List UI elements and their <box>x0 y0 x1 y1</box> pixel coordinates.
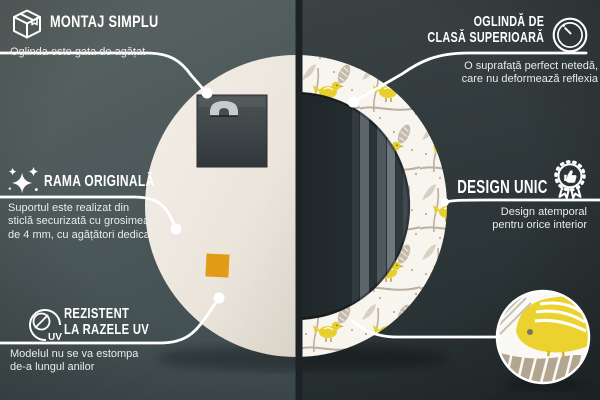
callout-design-unic: DESIGN UNIC Design atemporal pentru oric… <box>320 155 600 240</box>
product-infographic: MONTAJ SIMPLU Oglinda este gata de agăța… <box>0 0 600 400</box>
callout-dot-montaj <box>202 88 213 99</box>
callout-title: DESIGN UNIC <box>457 177 548 196</box>
callout-title-line2: CLASĂ SUPERIOARĂ <box>427 30 544 46</box>
zoom-connector-line <box>352 320 499 337</box>
uv-icon-label: UV <box>48 332 62 343</box>
callout-dot-oglinda <box>348 97 359 108</box>
package-box-icon <box>8 4 46 42</box>
callout-title: RAMA ORIGINALĂ <box>44 174 154 191</box>
callout-title-line1: OGLINDĂ DE <box>427 14 544 30</box>
callout-description: Design atemporal pentru orice interior <box>492 206 587 233</box>
callout-rezistent-uv: UV REZISTENT LA RAZELE UV Modelul nu se … <box>0 300 230 395</box>
callout-title-line1: REZISTENT <box>64 306 149 322</box>
uv-sun-icon: UV <box>26 307 64 345</box>
callout-description: Oglinda este gata de agățat <box>10 46 145 59</box>
callout-description: Modelul nu se va estompa de-a lungul ani… <box>10 348 138 375</box>
callout-description: O suprafață perfect netedă, care nu defo… <box>462 60 598 87</box>
callout-description: Suportul este realizat din sticlă securi… <box>8 202 159 242</box>
sparkles-icon <box>6 164 42 200</box>
award-badge-icon <box>550 159 590 201</box>
callout-title: MONTAJ SIMPLU <box>50 13 159 31</box>
round-mirror-icon <box>550 15 590 55</box>
callout-title-line2: LA RAZELE UV <box>64 322 149 338</box>
callout-montaj-simplu: MONTAJ SIMPLU Oglinda este gata de agăța… <box>0 0 240 75</box>
callout-rama-originala: RAMA ORIGINALĂ Suportul este realizat di… <box>0 162 200 252</box>
callout-oglinda-clasa-superioara: OGLINDĂ DE CLASĂ SUPERIOARĂ O suprafață … <box>330 10 600 90</box>
